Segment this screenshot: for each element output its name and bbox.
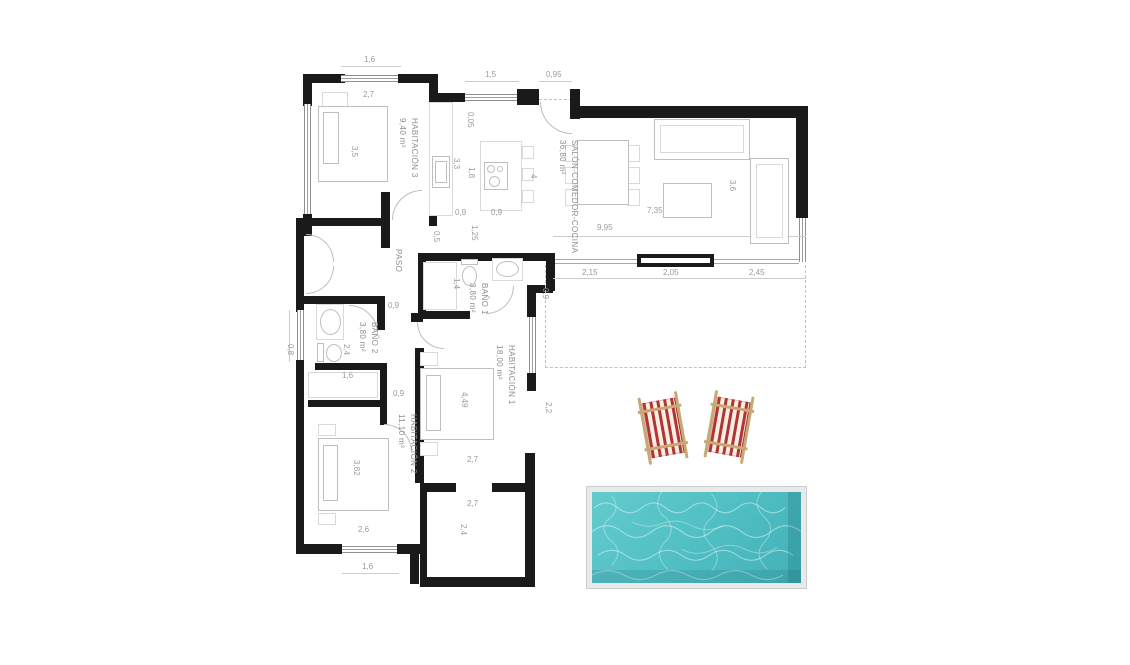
dimension: 2,2 bbox=[544, 402, 552, 413]
wall bbox=[380, 363, 387, 425]
pool-shadow-edge bbox=[592, 570, 801, 583]
room-area: 3,80 m² bbox=[356, 322, 368, 354]
toilet-bowl bbox=[326, 344, 342, 362]
dimension: 3,6 bbox=[728, 180, 736, 191]
room-area: 11,10 m² bbox=[395, 414, 407, 474]
room-label-salon: SALÓN-COMEDOR-COCINA 36,80 m² bbox=[556, 140, 580, 253]
dimension: 2,7 bbox=[363, 91, 374, 99]
sink bbox=[320, 309, 341, 335]
wall bbox=[527, 373, 536, 391]
dimension: 1,6 bbox=[362, 563, 373, 571]
room-name: BAÑO 2 bbox=[368, 322, 380, 354]
burner bbox=[497, 166, 503, 172]
wall bbox=[296, 544, 342, 554]
dimension-line bbox=[342, 573, 399, 574]
wall bbox=[796, 106, 808, 218]
wall bbox=[296, 296, 384, 304]
dimension: 2,05 bbox=[663, 269, 679, 277]
wall bbox=[381, 192, 390, 248]
nightstand bbox=[420, 442, 438, 456]
room-area: 3,80 m² bbox=[466, 283, 478, 315]
room-area: 9,40 m² bbox=[396, 118, 408, 178]
sofa-seat bbox=[660, 125, 744, 153]
dimension: 1,25 bbox=[470, 225, 478, 241]
dimension: 0,5 bbox=[432, 231, 440, 242]
room-name: HABITACIÓN 1 bbox=[505, 345, 517, 405]
dimension: 3,82 bbox=[352, 460, 360, 476]
dimension: 2,4 bbox=[459, 524, 467, 535]
burner bbox=[489, 176, 500, 187]
pillow bbox=[323, 112, 339, 164]
pillow bbox=[426, 375, 441, 431]
window bbox=[297, 310, 304, 362]
room-name: HABITACIÓN 3 bbox=[408, 118, 420, 178]
pillow bbox=[323, 445, 338, 501]
wall bbox=[310, 218, 386, 226]
dimension-line bbox=[539, 81, 572, 82]
entrance-opening bbox=[539, 99, 572, 100]
room-label-hab1: HABITACIÓN 1 18,00 m² bbox=[493, 345, 517, 405]
window bbox=[304, 104, 311, 216]
deck-chair-left bbox=[637, 395, 689, 461]
room-name: SALÓN-COMEDOR-COCINA bbox=[568, 140, 580, 253]
door-swing-arc bbox=[306, 266, 334, 294]
stool bbox=[522, 146, 534, 159]
window bbox=[342, 546, 399, 553]
stool bbox=[522, 190, 534, 203]
nightstand bbox=[420, 352, 438, 366]
sofa-seat bbox=[756, 164, 783, 238]
dimension: 0,9 bbox=[541, 288, 549, 299]
wall bbox=[492, 483, 527, 492]
dimension: 0,05 bbox=[466, 112, 474, 128]
dimension: 2,45 bbox=[749, 269, 765, 277]
dimension: 0,8 bbox=[286, 344, 294, 355]
dimension: 0,9 bbox=[455, 209, 466, 217]
dimension: 2,4 bbox=[342, 344, 350, 355]
dimension: 9,95 bbox=[597, 224, 613, 232]
room-label-hab3: HABITACIÓN 3 9,40 m² bbox=[396, 118, 420, 178]
nightstand bbox=[318, 424, 336, 436]
wall bbox=[527, 291, 536, 317]
room-name: BAÑO 1 bbox=[478, 283, 490, 315]
wall bbox=[303, 74, 312, 106]
toilet-tank bbox=[317, 343, 324, 362]
window bbox=[799, 218, 806, 262]
wall bbox=[296, 360, 304, 552]
wall-pillar bbox=[517, 89, 539, 105]
room-name: PASO bbox=[392, 249, 404, 272]
dimension: 4 bbox=[529, 174, 537, 178]
wall bbox=[418, 311, 470, 319]
window bbox=[465, 94, 519, 101]
dimension: 2,7 bbox=[467, 500, 478, 508]
kitchen-sink-basin bbox=[435, 161, 447, 183]
wall bbox=[420, 577, 535, 587]
dimension: 1,6 bbox=[342, 372, 353, 380]
room-name: HABITACIÓN 2 bbox=[407, 414, 419, 474]
door-swing-arc bbox=[417, 322, 444, 349]
room-label-hab2: HABITACIÓN 2 11,10 m² bbox=[395, 414, 419, 474]
dimension: 4,49 bbox=[460, 392, 468, 408]
dimension: 2,15 bbox=[582, 269, 598, 277]
door-swing-arc bbox=[392, 190, 422, 220]
window bbox=[341, 75, 401, 82]
wall bbox=[315, 363, 382, 370]
wall bbox=[429, 93, 465, 102]
room-area: 36,80 m² bbox=[556, 140, 568, 253]
dimension: 1,5 bbox=[485, 71, 496, 79]
sink bbox=[496, 261, 519, 277]
coffee-table bbox=[663, 183, 712, 218]
dimension: 1,6 bbox=[364, 56, 375, 64]
dimension: 2,6 bbox=[358, 526, 369, 534]
door-swing-arc bbox=[486, 286, 514, 314]
wall bbox=[410, 550, 419, 584]
dimension: 0,9 bbox=[491, 209, 502, 217]
dimension: 3,5 bbox=[350, 146, 358, 157]
room-area: 18,00 m² bbox=[493, 345, 505, 405]
dining-table bbox=[577, 140, 629, 205]
window bbox=[529, 317, 536, 373]
room-label-paso: PASO bbox=[392, 249, 404, 272]
dimension-line bbox=[465, 81, 519, 82]
swimming-pool bbox=[586, 486, 807, 589]
dimension: 1,4 bbox=[452, 278, 460, 289]
dimension: 0,95 bbox=[546, 71, 562, 79]
wall bbox=[420, 483, 427, 583]
dimension: 0,9 bbox=[393, 390, 404, 398]
wall bbox=[418, 253, 555, 261]
dimension: 3,3 bbox=[452, 158, 460, 169]
wall bbox=[411, 313, 423, 322]
door-swing-arc bbox=[306, 234, 334, 262]
room-label-bano1: BAÑO 1 3,80 m² bbox=[466, 283, 490, 315]
wall bbox=[308, 400, 382, 407]
dimension-line bbox=[341, 66, 401, 67]
door-swing-arc bbox=[540, 102, 572, 134]
toilet-tank bbox=[461, 259, 478, 265]
burner bbox=[487, 165, 495, 173]
floor-plan-canvas: HABITACIÓN 3 9,40 m² SALÓN-COMEDOR-COCIN… bbox=[0, 0, 1130, 665]
dimension: 0,9 bbox=[388, 302, 399, 310]
room-label-bano2: BAÑO 2 3,80 m² bbox=[356, 322, 380, 354]
terrace-outline bbox=[545, 265, 806, 368]
dimension: 7,35 bbox=[647, 207, 663, 215]
wall bbox=[525, 453, 535, 587]
dimension: 1,8 bbox=[467, 167, 475, 178]
wall bbox=[570, 106, 808, 118]
pool-water bbox=[592, 492, 801, 583]
dimension: 2,7 bbox=[467, 456, 478, 464]
nightstand bbox=[318, 513, 336, 525]
deck-chair-right bbox=[703, 394, 755, 460]
